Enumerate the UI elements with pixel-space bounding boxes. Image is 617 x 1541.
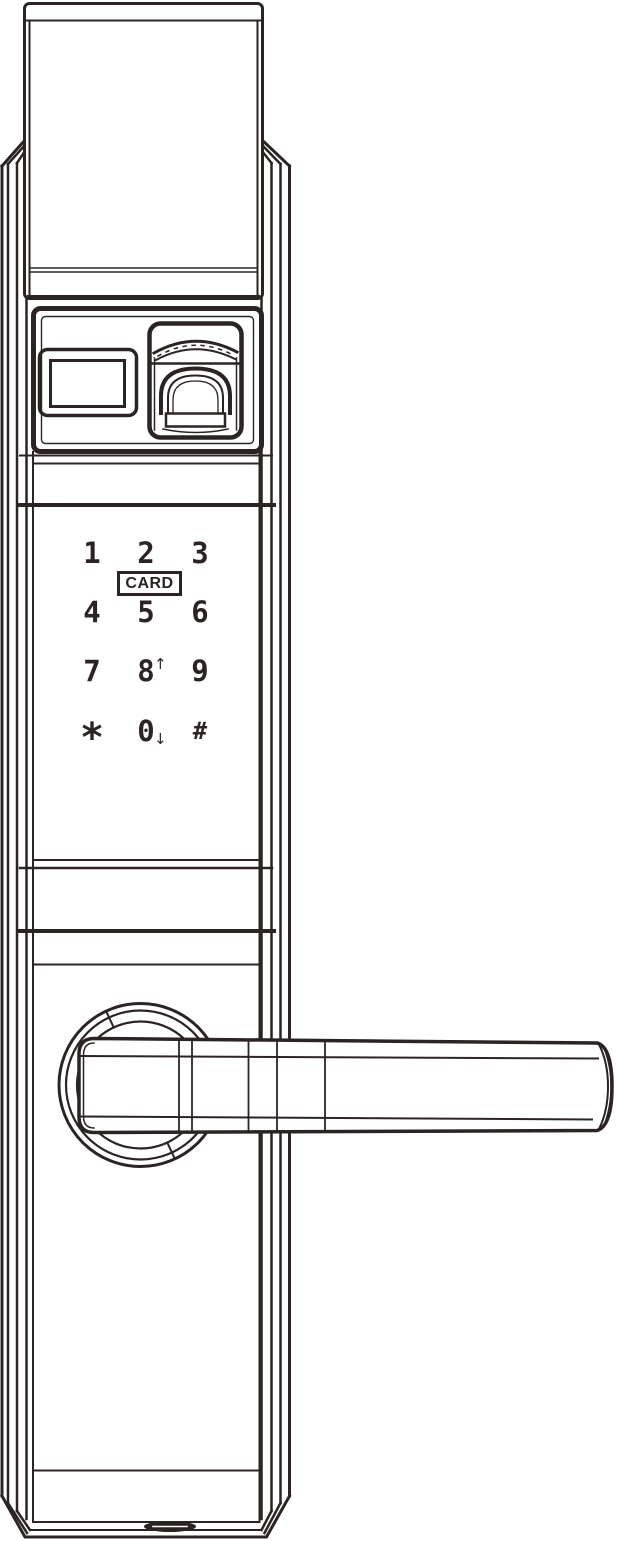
key-8[interactable]: 8 ↑ [124, 651, 168, 691]
key-8-label: 8 [137, 654, 154, 688]
scroll-up-icon: ↑ [154, 657, 167, 672]
key-1[interactable]: 1 [70, 533, 114, 573]
key-4[interactable]: 4 [70, 592, 114, 632]
key-1-label: 1 [83, 536, 100, 570]
fingerprint-scanner[interactable] [150, 324, 242, 438]
status-display-window [40, 350, 137, 416]
smart-door-lock-drawing: 1 2 3 CARD 4 5 6 7 8 ↑ 9 * 0 ↓ # [0, 0, 617, 1541]
key-4-label: 4 [83, 595, 100, 629]
bottom-screw-cover [144, 1521, 196, 1532]
key-7[interactable]: 7 [70, 651, 114, 691]
key-5[interactable]: 5 [124, 592, 168, 632]
key-3[interactable]: 3 [178, 533, 222, 573]
key-5-label: 5 [137, 595, 154, 629]
key-0[interactable]: 0 ↓ [124, 711, 168, 751]
key-6-label: 6 [191, 595, 208, 629]
key-9-label: 9 [191, 654, 208, 688]
scroll-down-icon: ↓ [154, 732, 167, 747]
key-0-label: 0 [137, 714, 154, 748]
key-9[interactable]: 9 [178, 651, 222, 691]
key-2-label: 2 [137, 536, 154, 570]
key-hash[interactable]: # [178, 711, 222, 751]
key-star[interactable]: * [70, 711, 114, 751]
key-2[interactable]: 2 [124, 533, 168, 573]
card-label-text: CARD [125, 575, 173, 593]
top-mounting-plate [25, 4, 263, 299]
key-6[interactable]: 6 [178, 592, 222, 632]
key-7-label: 7 [83, 654, 100, 688]
key-hash-label: # [193, 717, 207, 745]
door-handle[interactable] [79, 1039, 612, 1133]
key-3-label: 3 [191, 536, 208, 570]
key-star-label: * [80, 715, 104, 761]
